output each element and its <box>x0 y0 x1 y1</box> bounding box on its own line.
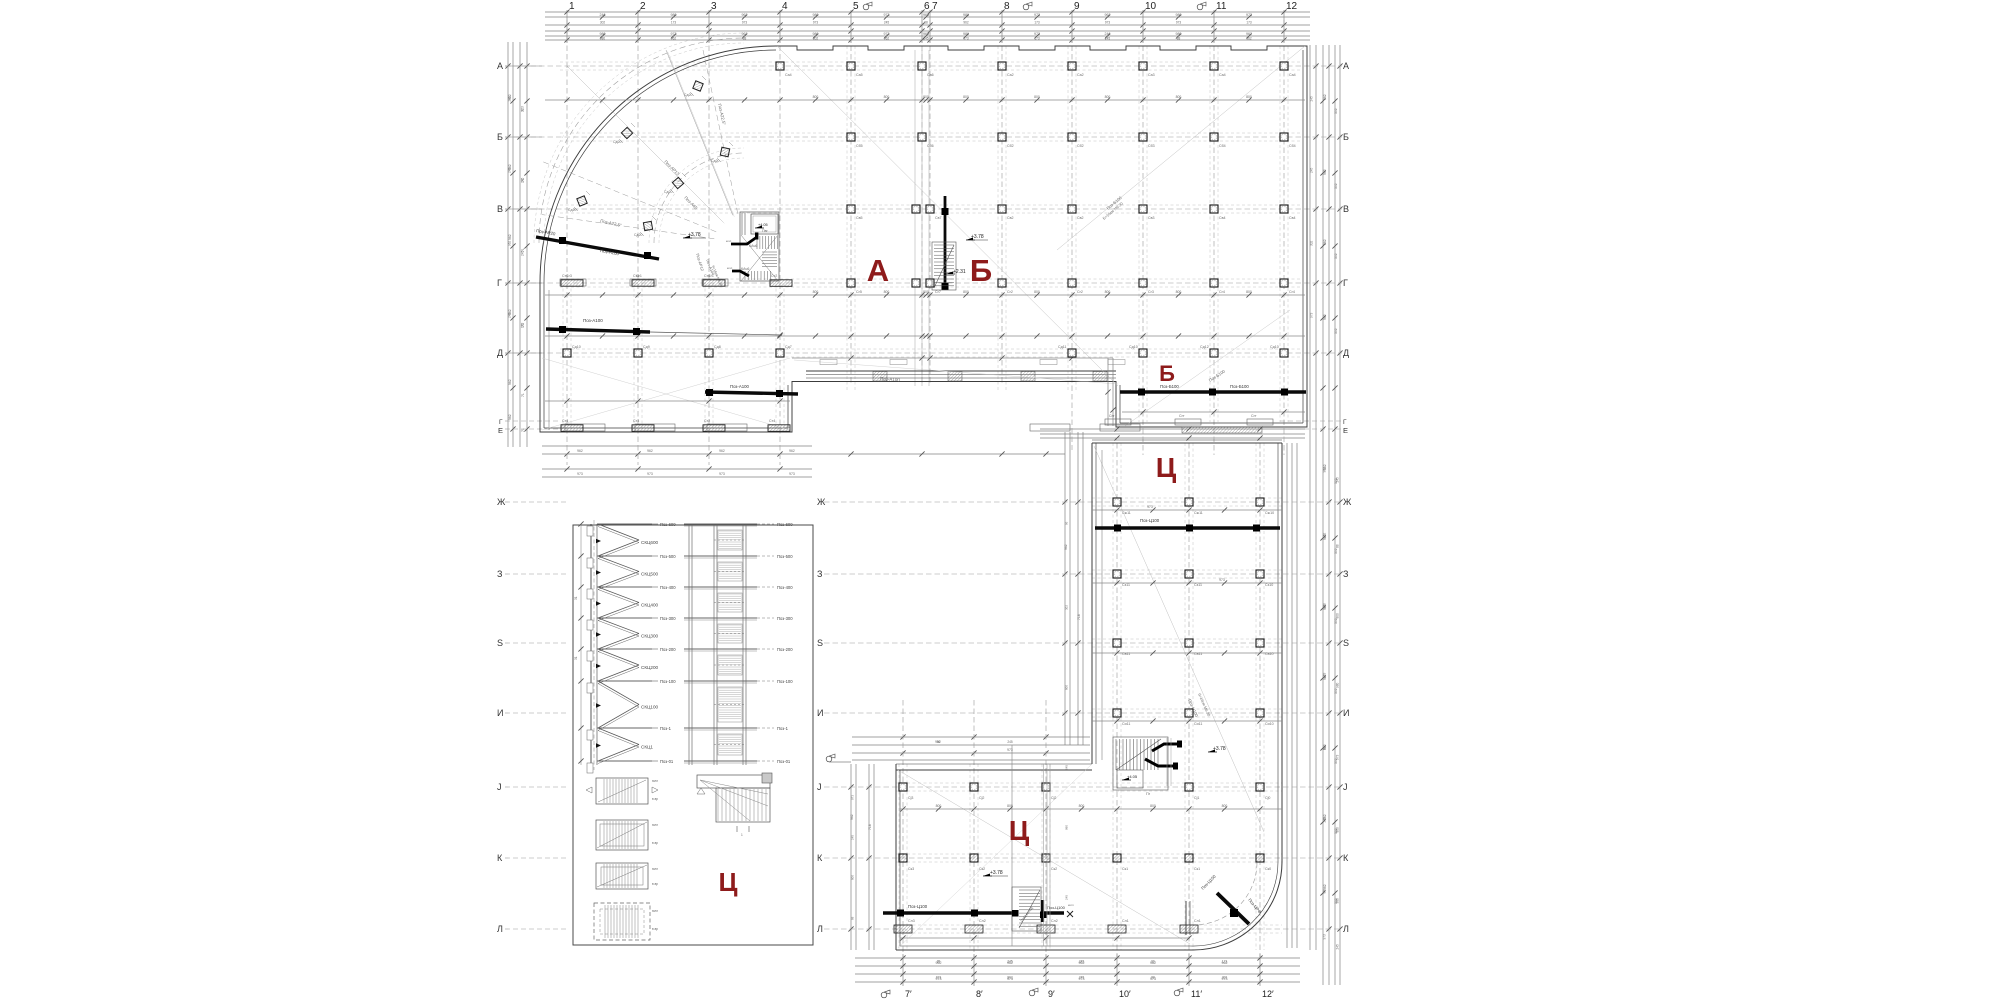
svg-text:юлл: юлл <box>652 867 658 871</box>
svg-text:962: 962 <box>647 449 653 453</box>
svg-text:980: 980 <box>963 32 969 36</box>
svg-text:Сб4: Сб4 <box>1289 144 1296 148</box>
svg-text:962: 962 <box>1246 32 1252 36</box>
svg-text:Сб2: Сб2 <box>1007 144 1014 148</box>
svg-text:962: 962 <box>1323 467 1327 473</box>
svg-text:962: 962 <box>923 13 929 17</box>
svg-text:Сз11: Сз11 <box>1122 583 1130 587</box>
svg-text:К: К <box>497 853 503 863</box>
svg-text:Св2: Св2 <box>1007 216 1014 220</box>
svg-text:Сj2: Сj2 <box>979 796 984 800</box>
svg-text:в.вр: в.вр <box>652 841 658 845</box>
svg-text:в.вр: в.вр <box>652 882 658 886</box>
svg-text:+3.78: +3.78 <box>971 234 984 240</box>
svg-text:10: 10 <box>1145 1 1157 12</box>
svg-text:302: 302 <box>1222 976 1228 980</box>
svg-text:88: 88 <box>1323 890 1327 894</box>
svg-text:Сд20: Сд20 <box>711 159 720 163</box>
svg-text:юлл: юлл <box>1068 903 1074 907</box>
svg-text:173: 173 <box>671 21 677 25</box>
svg-text:Ск0: Ск0 <box>1265 867 1271 871</box>
svg-text:962: 962 <box>850 814 854 820</box>
svg-text:245: 245 <box>851 835 855 840</box>
svg-text:245: 245 <box>1079 976 1085 980</box>
svg-text:302: 302 <box>1334 548 1338 554</box>
svg-text:973: 973 <box>1219 578 1225 582</box>
svg-text:+4.05: +4.05 <box>758 223 768 227</box>
svg-text:Са5: Са5 <box>856 73 863 77</box>
svg-text:Са6: Са6 <box>927 73 934 77</box>
svg-text:245: 245 <box>508 167 512 173</box>
svg-text:В: В <box>497 204 503 214</box>
svg-text:Ск1: Ск1 <box>1122 867 1128 871</box>
svg-text:973: 973 <box>742 21 748 25</box>
svg-text:Ск1: Ск1 <box>1194 867 1200 871</box>
svg-text:Поз-01: Поз-01 <box>660 759 674 764</box>
svg-text:973: 973 <box>1147 505 1153 509</box>
svg-text:800: 800 <box>1065 685 1069 690</box>
svg-text:9′: 9′ <box>1048 989 1055 999</box>
svg-text:245: 245 <box>508 96 512 102</box>
svg-text:980: 980 <box>600 32 606 36</box>
svg-text:718: 718 <box>1077 614 1081 620</box>
svg-text:71: 71 <box>521 393 525 397</box>
svg-text:12′: 12′ <box>1262 989 1274 999</box>
svg-text:S: S <box>1343 638 1349 648</box>
svg-text:173: 173 <box>1222 960 1228 964</box>
svg-text:245: 245 <box>1007 960 1013 964</box>
svg-text:Поз-500: Поз-500 <box>660 554 676 559</box>
svg-text:973: 973 <box>521 106 525 112</box>
svg-text:Сд20: Сд20 <box>613 140 622 144</box>
svg-text:962: 962 <box>742 32 748 36</box>
svg-text:Св3: Св3 <box>1148 216 1155 220</box>
svg-text:11′: 11′ <box>1191 989 1202 999</box>
svg-text:245: 245 <box>1336 944 1340 950</box>
svg-text:З: З <box>817 569 822 579</box>
svg-text:980: 980 <box>963 13 969 17</box>
svg-text:СКЦ500: СКЦ500 <box>641 572 659 577</box>
svg-text:245: 245 <box>1065 765 1069 770</box>
svg-text:Си10: Си10 <box>1265 722 1274 726</box>
svg-text:302: 302 <box>813 36 819 40</box>
svg-text:Сз10: Сз10 <box>1265 583 1273 587</box>
svg-text:Сг3: Сг3 <box>1148 290 1154 294</box>
svg-text:302: 302 <box>1065 605 1069 610</box>
svg-text:Поз-100: Поз-100 <box>777 679 793 684</box>
svg-text:Ж: Ж <box>1343 497 1352 507</box>
svg-text:Б: Б <box>1159 361 1175 386</box>
svg-text:А: А <box>867 253 889 288</box>
svg-text:9: 9 <box>1074 1 1080 12</box>
svg-text:S: S <box>817 638 823 648</box>
svg-text:800: 800 <box>851 875 855 880</box>
svg-text:К: К <box>817 853 823 863</box>
svg-text:Д: Д <box>497 348 503 358</box>
svg-text:Сж11: Сж11 <box>1194 511 1203 515</box>
svg-text:Ц: Ц <box>719 867 738 897</box>
svg-text:Поз-400: Поз-400 <box>777 585 793 590</box>
svg-text:СКЦ400: СКЦ400 <box>641 603 659 608</box>
svg-text:Сг1: Сг1 <box>636 274 642 278</box>
svg-text:Сг4: Сг4 <box>1219 290 1225 294</box>
svg-text:962: 962 <box>789 449 795 453</box>
svg-text:Г: Г <box>1343 419 1347 426</box>
svg-text:Са2: Са2 <box>1077 73 1084 77</box>
svg-text:Поз-600: Поз-600 <box>777 522 793 527</box>
svg-text:302: 302 <box>1334 328 1338 334</box>
svg-text:юлл: юлл <box>652 779 658 783</box>
svg-text:245: 245 <box>521 177 525 183</box>
svg-text:Са2: Са2 <box>1007 73 1014 77</box>
svg-text:юлл: юлл <box>652 823 658 827</box>
svg-text:88: 88 <box>743 36 747 40</box>
svg-text:Сд20: Сд20 <box>664 190 673 194</box>
svg-text:юлл: юлл <box>726 239 732 243</box>
svg-text:И: И <box>497 708 503 718</box>
svg-text:5: 5 <box>853 1 859 12</box>
svg-text:Поз-01: Поз-01 <box>777 759 791 764</box>
svg-text:И: И <box>817 708 823 718</box>
svg-text:245: 245 <box>1336 477 1340 483</box>
svg-text:Ск2: Ск2 <box>979 867 985 871</box>
svg-text:Сгт: Сгт <box>1251 414 1257 418</box>
svg-text:962: 962 <box>923 32 929 36</box>
svg-text:962: 962 <box>1064 544 1068 550</box>
svg-text:Сб6: Сб6 <box>927 144 934 148</box>
svg-text:245: 245 <box>508 312 512 318</box>
svg-text:980: 980 <box>813 13 819 17</box>
svg-text:973: 973 <box>1034 13 1040 17</box>
svg-text:245: 245 <box>1065 895 1069 900</box>
svg-text:Поз-600: Поз-600 <box>660 522 676 527</box>
svg-text:Са4: Са4 <box>1219 73 1226 77</box>
svg-text:973: 973 <box>1246 13 1252 17</box>
svg-text:Сд20: Сд20 <box>568 208 577 212</box>
svg-text:Сг2: Сг2 <box>1007 290 1013 294</box>
svg-text:Св5: Св5 <box>856 216 863 220</box>
svg-text:973: 973 <box>647 472 653 476</box>
svg-text:31: 31 <box>574 596 578 600</box>
svg-text:+3.78: +3.78 <box>688 232 701 238</box>
svg-text:Сж10: Сж10 <box>1265 511 1274 515</box>
svg-text:Св4: Св4 <box>1219 216 1226 220</box>
svg-text:И: И <box>1343 708 1349 718</box>
svg-text:Сд8: Сд8 <box>714 345 721 349</box>
svg-text:Сг1: Сг1 <box>708 274 714 278</box>
svg-text:Сд9: Сд9 <box>643 345 650 349</box>
svg-text:А: А <box>1343 61 1349 71</box>
svg-text:Пг: Пг <box>1146 792 1151 796</box>
svg-text:962: 962 <box>963 21 969 25</box>
svg-text:973: 973 <box>1323 934 1327 940</box>
svg-text:юлл: юлл <box>652 909 658 913</box>
svg-text:Б: Б <box>1343 132 1349 142</box>
svg-text:Е: Е <box>1343 426 1348 435</box>
svg-text:J: J <box>1343 782 1348 792</box>
svg-text:980: 980 <box>1065 825 1069 830</box>
svg-text:В: В <box>1343 204 1349 214</box>
svg-text:245: 245 <box>1007 740 1013 744</box>
svg-text:Поз-200: Поз-200 <box>777 647 793 652</box>
svg-text:Сд10: Сд10 <box>572 345 581 349</box>
svg-text:Ж: Ж <box>497 497 506 507</box>
svg-text:973: 973 <box>1034 32 1040 36</box>
svg-text:88: 88 <box>1336 544 1340 548</box>
svg-text:1: 1 <box>741 833 743 837</box>
svg-text:7′: 7′ <box>905 989 912 999</box>
svg-text:962: 962 <box>1323 239 1327 245</box>
svg-text:2: 2 <box>640 1 646 12</box>
svg-text:980: 980 <box>1176 32 1182 36</box>
svg-text:Л: Л <box>1343 924 1349 934</box>
svg-text:980: 980 <box>671 13 677 17</box>
svg-text:юлл: юлл <box>727 266 733 270</box>
svg-text:Св11: Св11 <box>1194 652 1202 656</box>
svg-text:962: 962 <box>1323 94 1327 100</box>
svg-text:Б: Б <box>970 253 992 288</box>
svg-text:962: 962 <box>742 13 748 17</box>
svg-text:Поз-500: Поз-500 <box>777 554 793 559</box>
svg-text:302: 302 <box>1334 253 1338 259</box>
svg-text:973: 973 <box>884 32 890 36</box>
svg-text:Сл1: Сл1 <box>1194 919 1201 923</box>
svg-text:Поз-Ц100: Поз-Ц100 <box>1140 518 1160 523</box>
svg-text:245: 245 <box>521 250 525 256</box>
svg-text:88: 88 <box>924 21 928 25</box>
svg-text:К: К <box>1343 853 1349 863</box>
svg-text:Сл2: Сл2 <box>979 919 986 923</box>
svg-text:Ст4: Ст4 <box>562 419 568 423</box>
svg-text:СКЦ600: СКЦ600 <box>641 540 659 545</box>
svg-text:973: 973 <box>1105 21 1111 25</box>
svg-text:Сг2: Сг2 <box>1077 290 1083 294</box>
svg-text:+3.78: +3.78 <box>990 870 1003 876</box>
svg-text:СКЦ300: СКЦ300 <box>641 634 659 639</box>
svg-text:Св7: Св7 <box>935 216 942 220</box>
svg-text:Поз-100: Поз-100 <box>660 679 676 684</box>
svg-text:973: 973 <box>1336 754 1340 760</box>
svg-text:Св4: Св4 <box>1289 216 1296 220</box>
svg-text:+4.05: +4.05 <box>1127 774 1138 779</box>
svg-text:Поз-300: Поз-300 <box>660 616 676 621</box>
svg-text:Поз-А100: Поз-А100 <box>730 384 749 389</box>
svg-text:302: 302 <box>1334 108 1338 114</box>
svg-text:962: 962 <box>508 379 512 385</box>
svg-text:Сд20: Сд20 <box>634 233 643 237</box>
svg-text:962: 962 <box>577 449 583 453</box>
svg-text:Сд10: Сд10 <box>1129 345 1138 349</box>
svg-text:962: 962 <box>719 449 725 453</box>
svg-text:Си11: Си11 <box>1122 722 1130 726</box>
svg-text:173: 173 <box>1034 21 1040 25</box>
svg-text:980: 980 <box>600 36 606 40</box>
svg-text:962: 962 <box>1323 884 1327 890</box>
svg-text:Сг5: Сг5 <box>856 290 862 294</box>
svg-text:Е: Е <box>498 426 503 435</box>
svg-text:Поз-А100: Поз-А100 <box>583 318 603 323</box>
svg-text:88: 88 <box>1323 746 1327 750</box>
svg-text:Сгт: Сгт <box>1179 414 1185 418</box>
svg-text:962: 962 <box>508 240 512 246</box>
svg-text:973: 973 <box>577 472 583 476</box>
svg-text:8: 8 <box>1004 1 1010 12</box>
svg-text:Сж11: Сж11 <box>1122 511 1131 515</box>
svg-text:в.вр: в.вр <box>652 927 658 931</box>
svg-text:Сб5: Сб5 <box>856 144 863 148</box>
svg-text:245: 245 <box>923 36 929 40</box>
svg-text:Г: Г <box>497 278 502 288</box>
svg-text:Сз11: Сз11 <box>1194 583 1202 587</box>
svg-text:962: 962 <box>1007 976 1013 980</box>
svg-text:980: 980 <box>1336 898 1340 904</box>
svg-text:Ц: Ц <box>1156 452 1177 483</box>
svg-text:980: 980 <box>1176 13 1182 17</box>
svg-text:302: 302 <box>1310 240 1314 246</box>
svg-text:Л: Л <box>817 924 823 934</box>
svg-text:246: 246 <box>600 13 606 17</box>
svg-text:З: З <box>1343 569 1348 579</box>
svg-text:962: 962 <box>1323 314 1327 320</box>
svg-text:СКЦ1: СКЦ1 <box>641 745 653 750</box>
svg-text:173: 173 <box>1246 21 1252 25</box>
svg-text:Си11: Си11 <box>1194 722 1202 726</box>
svg-text:973: 973 <box>813 21 819 25</box>
svg-text:12: 12 <box>1286 1 1298 12</box>
svg-text:Св2: Св2 <box>1077 216 1084 220</box>
svg-text:973: 973 <box>851 795 855 800</box>
svg-text:Сб3: Сб3 <box>1148 144 1155 148</box>
svg-text:973: 973 <box>789 472 795 476</box>
svg-text:11: 11 <box>1216 1 1227 12</box>
svg-text:Поз-Ц100: Поз-Ц100 <box>908 904 928 909</box>
svg-text:Сд10: Сд10 <box>1270 345 1279 349</box>
svg-text:973: 973 <box>884 13 890 17</box>
svg-text:88: 88 <box>851 916 855 920</box>
svg-text:173: 173 <box>521 322 525 328</box>
svg-text:245: 245 <box>1079 960 1085 964</box>
svg-text:S: S <box>497 638 503 648</box>
svg-text:973: 973 <box>936 976 942 980</box>
svg-text:973: 973 <box>719 472 725 476</box>
svg-text:96: 96 <box>1151 960 1155 964</box>
svg-text:245: 245 <box>1105 36 1111 40</box>
svg-text:173: 173 <box>1034 36 1040 40</box>
svg-text:Д: Д <box>1343 348 1349 358</box>
svg-text:980: 980 <box>813 32 819 36</box>
svg-text:Ск3: Ск3 <box>908 867 914 871</box>
svg-text:973: 973 <box>963 36 969 40</box>
svg-text:Ст3: Ст3 <box>633 419 639 423</box>
svg-text:Сj1: Сj1 <box>1194 796 1199 800</box>
svg-text:Сд11: Сд11 <box>1058 345 1066 349</box>
svg-text:4: 4 <box>782 1 788 12</box>
svg-text:6: 6 <box>924 1 930 12</box>
svg-text:245: 245 <box>1323 817 1327 823</box>
svg-text:Сj3: Сj3 <box>908 796 913 800</box>
svg-text:962: 962 <box>508 234 512 240</box>
svg-text:Поз-1: Поз-1 <box>777 726 789 731</box>
svg-text:Г: Г <box>1343 278 1348 288</box>
svg-text:Сб4: Сб4 <box>1219 144 1226 148</box>
svg-text:1: 1 <box>569 1 575 12</box>
svg-text:Са4: Са4 <box>785 73 792 77</box>
svg-text:Поз-Б100: Поз-Б100 <box>1230 384 1249 389</box>
svg-text:800: 800 <box>1336 827 1340 833</box>
svg-text:А: А <box>497 61 503 71</box>
svg-text:Сj2: Сj2 <box>1051 796 1056 800</box>
svg-text:Ст4: Ст4 <box>769 419 775 423</box>
svg-text:КАч6: КАч6 <box>741 267 749 271</box>
svg-text:Поз-300: Поз-300 <box>777 616 793 621</box>
svg-text:96: 96 <box>937 740 941 744</box>
svg-text:Поз-200: Поз-200 <box>660 647 676 652</box>
svg-text:718: 718 <box>868 824 872 830</box>
svg-text:СКЦ200: СКЦ200 <box>641 665 659 670</box>
svg-text:Ц: Ц <box>1009 815 1030 846</box>
svg-text:31: 31 <box>574 656 578 660</box>
svg-text:973: 973 <box>1176 21 1182 25</box>
svg-text:Сл1: Сл1 <box>1122 919 1129 923</box>
svg-text:Сг3: Сг3 <box>566 274 572 278</box>
svg-text:Поз-1: Поз-1 <box>660 726 672 731</box>
svg-text:J: J <box>817 782 822 792</box>
svg-text:Поз-400: Поз-400 <box>660 585 676 590</box>
svg-text:Сб2: Сб2 <box>1077 144 1084 148</box>
svg-text:Б: Б <box>497 132 503 142</box>
svg-text:Сд7: Сд7 <box>785 345 792 349</box>
svg-text:302: 302 <box>1334 183 1338 189</box>
svg-text:962: 962 <box>884 36 890 40</box>
svg-text:88: 88 <box>1177 36 1181 40</box>
svg-text:962: 962 <box>671 36 677 40</box>
svg-text:Г: Г <box>499 419 503 426</box>
svg-text:Сд12: Сд12 <box>1200 345 1209 349</box>
svg-text:302: 302 <box>1334 688 1338 694</box>
svg-text:З: З <box>497 569 502 579</box>
svg-text:Сj0: Сj0 <box>1265 796 1270 800</box>
svg-text:980: 980 <box>1336 682 1340 688</box>
svg-text:Пвг: Пвг <box>762 229 768 233</box>
svg-text:Сл3: Сл3 <box>908 919 915 923</box>
svg-text:173: 173 <box>1323 672 1327 678</box>
svg-text:980: 980 <box>1323 603 1327 609</box>
svg-text:962: 962 <box>508 414 512 420</box>
svg-text:8′: 8′ <box>976 989 983 999</box>
svg-text:Сл2: Сл2 <box>1051 919 1058 923</box>
svg-text:973: 973 <box>671 32 677 36</box>
svg-text:Сг4: Сг4 <box>1289 290 1295 294</box>
svg-text:7: 7 <box>932 1 938 12</box>
svg-text:800: 800 <box>1336 613 1340 619</box>
svg-text:Сгт: Сгт <box>1109 414 1115 418</box>
svg-text:СКЦ100: СКЦ100 <box>641 705 659 710</box>
svg-text:Св11: Св11 <box>1122 652 1130 656</box>
svg-text:88: 88 <box>937 960 941 964</box>
svg-text:973: 973 <box>1310 312 1314 318</box>
svg-text:88: 88 <box>1151 976 1155 980</box>
svg-text:96: 96 <box>1065 521 1069 525</box>
svg-text:10′: 10′ <box>1119 989 1131 999</box>
svg-text:+2.31: +2.31 <box>953 269 966 275</box>
svg-text:245: 245 <box>884 21 890 25</box>
svg-text:Л: Л <box>497 924 503 934</box>
svg-text:245: 245 <box>1310 96 1314 102</box>
svg-text:Св10: Св10 <box>1265 652 1274 656</box>
svg-text:962: 962 <box>1323 532 1327 538</box>
svg-text:+3.78: +3.78 <box>1213 746 1226 752</box>
svg-text:КАч6: КАч6 <box>749 244 757 248</box>
